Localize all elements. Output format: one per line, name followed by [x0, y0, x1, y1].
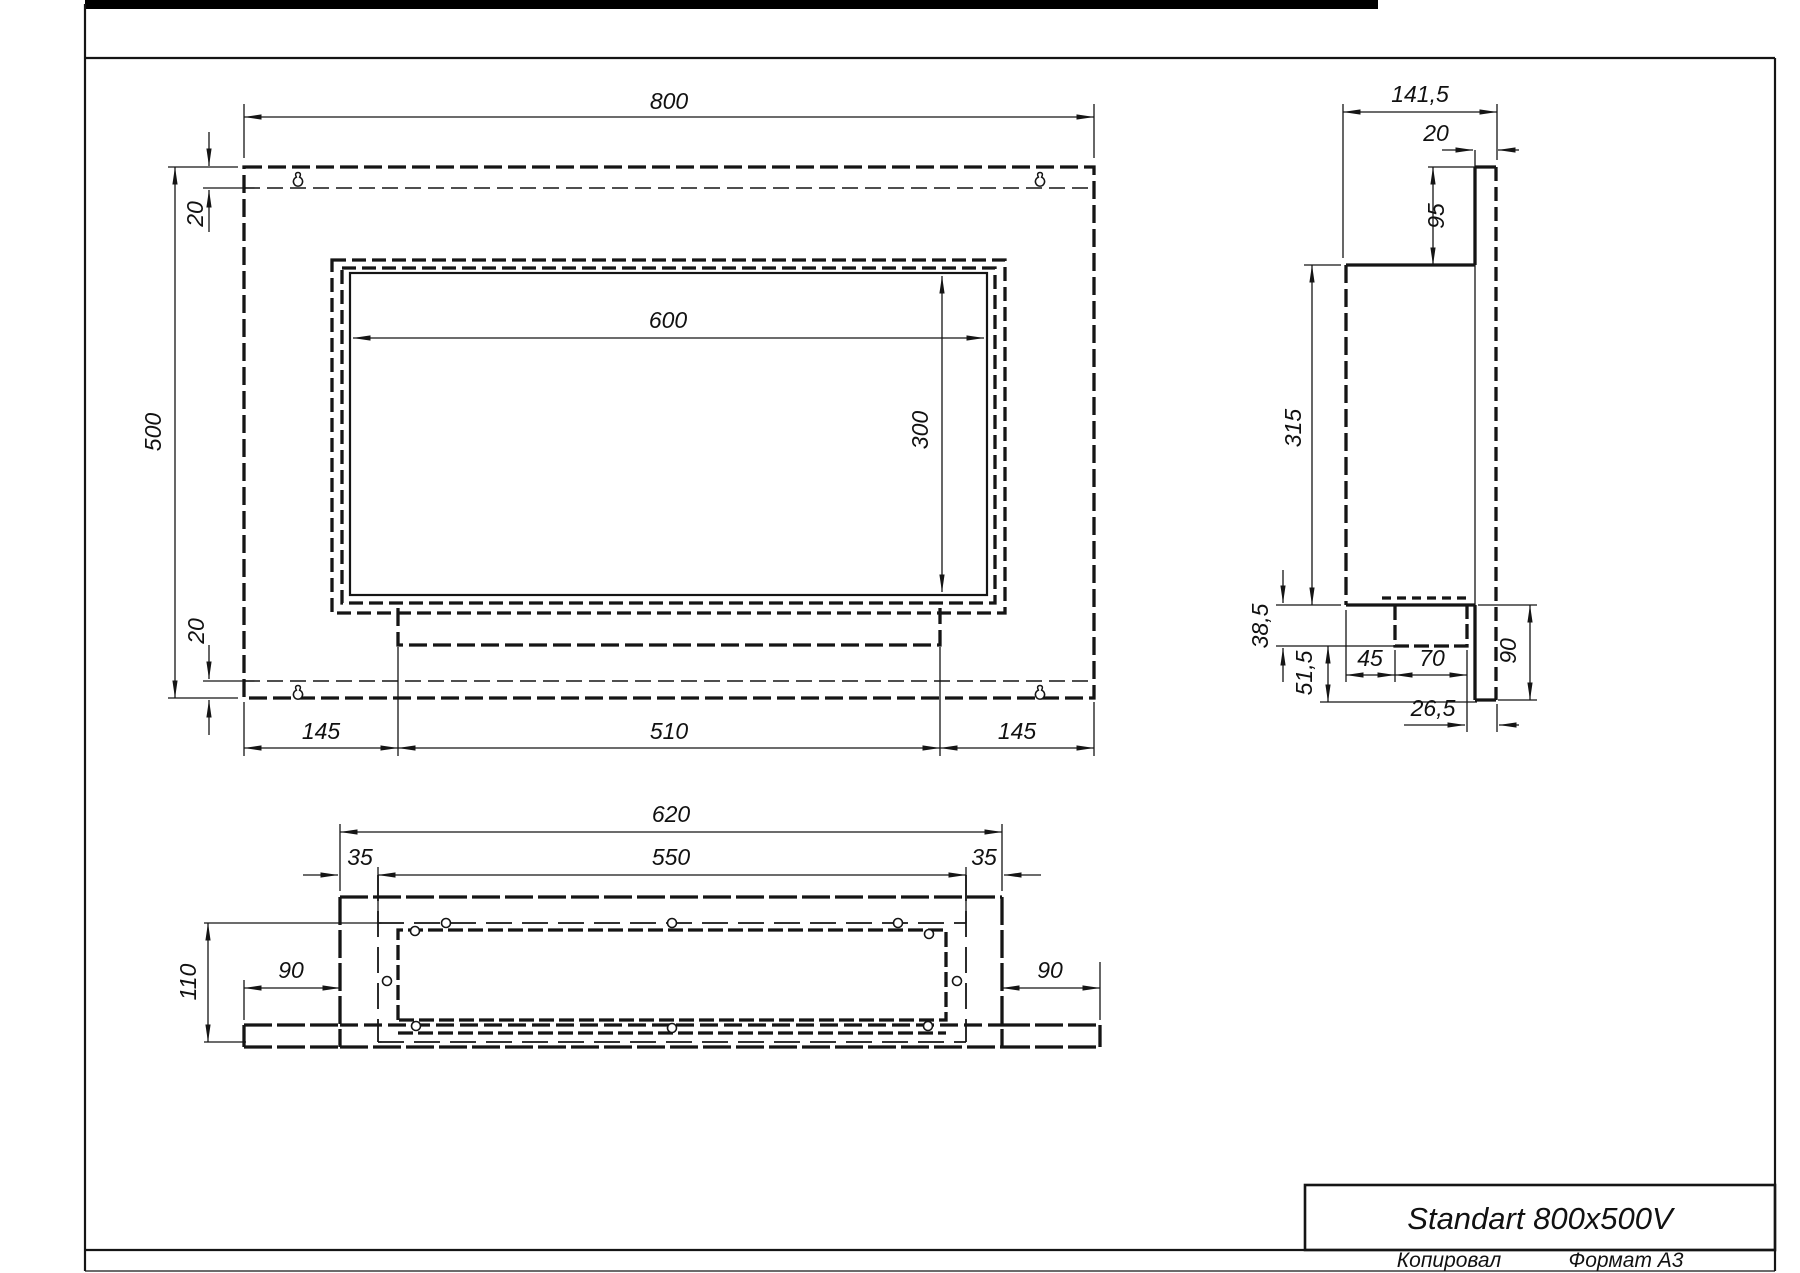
screw-hole: [925, 930, 934, 939]
dim-plate-bottom-drop: 90: [1478, 605, 1537, 700]
dim-label: 38,5: [1247, 603, 1273, 648]
side-view: 141,5 20 95 315 38,5: [1247, 81, 1537, 732]
footer-copied-by: Копировал: [1397, 1249, 1502, 1272]
dim-label: 600: [649, 307, 688, 333]
dim-label: 620: [652, 801, 691, 827]
model-name: Standart 800x500V: [1407, 1201, 1676, 1236]
screw-holes: [383, 919, 962, 1033]
dim-label: 141,5: [1391, 81, 1449, 107]
hidden-niche-outline: [378, 875, 966, 1042]
dim-label: 300: [907, 411, 933, 450]
dim-label: 90: [1495, 638, 1521, 664]
dim-right-wing: 90: [1002, 957, 1100, 1020]
dim-front-bottom-row: 145 510 145: [244, 647, 1094, 756]
dim-label: 20: [182, 201, 208, 228]
dim-label: 510: [650, 718, 689, 744]
screw-hole: [953, 977, 962, 986]
screw-hole: [383, 977, 392, 986]
dim-label: 110: [175, 963, 201, 1000]
screw-hole: [668, 1024, 677, 1033]
dim-label: 500: [140, 413, 166, 452]
dim-label: 70: [1419, 645, 1445, 671]
dim-bottom-clearance: 51,5: [1291, 646, 1477, 702]
dim-label: 20: [1422, 120, 1449, 146]
screw-hole: [442, 919, 451, 928]
mounting-keyhole-icon: [293, 686, 302, 700]
dim-label: 145: [302, 718, 341, 744]
dim-label: 20: [183, 618, 209, 645]
dim-front-bottom-flange: 20: [183, 618, 246, 735]
dim-label: 800: [650, 88, 689, 114]
dim-label: 35: [347, 844, 373, 870]
dim-plate-top-drop: 95: [1423, 167, 1475, 265]
mounting-keyhole-icon: [293, 173, 302, 187]
drawing-sheet: 800 500 20 20 600: [0, 0, 1800, 1273]
screw-hole: [894, 919, 903, 928]
dim-label: 145: [998, 718, 1037, 744]
dim-label: 90: [1037, 957, 1063, 983]
dim-label: 90: [278, 957, 304, 983]
screw-hole: [668, 919, 677, 928]
dim-opening-width: 600: [353, 307, 984, 338]
sheet-footer: Копировал Формат А3: [1397, 1249, 1684, 1272]
sheet-top-bar: [85, 0, 1378, 9]
dim-label: 35: [971, 844, 997, 870]
hidden-box-outline: [398, 930, 946, 1033]
wall-plate: [1475, 167, 1496, 700]
dim-left-wing: 90: [244, 957, 340, 1020]
dim-label: 26,5: [1410, 695, 1456, 721]
dim-opening-height: 300: [907, 276, 942, 592]
dim-front-overall-width: 800: [244, 88, 1094, 158]
dim-front-top-flange: 20: [182, 132, 246, 232]
side-tray: [1395, 605, 1467, 646]
front-panel-outline: [244, 167, 1094, 698]
title-block: Standart 800x500V: [1305, 1185, 1775, 1250]
dim-body-height: 315: [1276, 265, 1341, 605]
side-body: [1346, 265, 1475, 605]
dim-label: 51,5: [1291, 650, 1317, 695]
dim-bottom-niche-width: 550 35 35: [303, 844, 1041, 923]
screw-hole: [411, 927, 420, 936]
dim-plate-thickness: 20: [1422, 120, 1519, 150]
footer-format: Формат А3: [1569, 1249, 1684, 1272]
dim-label: 315: [1280, 409, 1306, 448]
dim-label: 45: [1357, 645, 1383, 671]
screw-hole: [924, 1022, 933, 1031]
dim-label: 95: [1423, 203, 1449, 229]
screw-hole: [412, 1022, 421, 1031]
sheet-frame: [85, 0, 1775, 1271]
front-view: 800 500 20 20 600: [140, 88, 1094, 756]
dim-label: 550: [652, 844, 691, 870]
bottom-view: 620 550 35 35 90 90 110: [175, 801, 1100, 1047]
mounting-keyhole-icon: [1035, 686, 1044, 700]
mounting-keyhole-icon: [1035, 173, 1044, 187]
